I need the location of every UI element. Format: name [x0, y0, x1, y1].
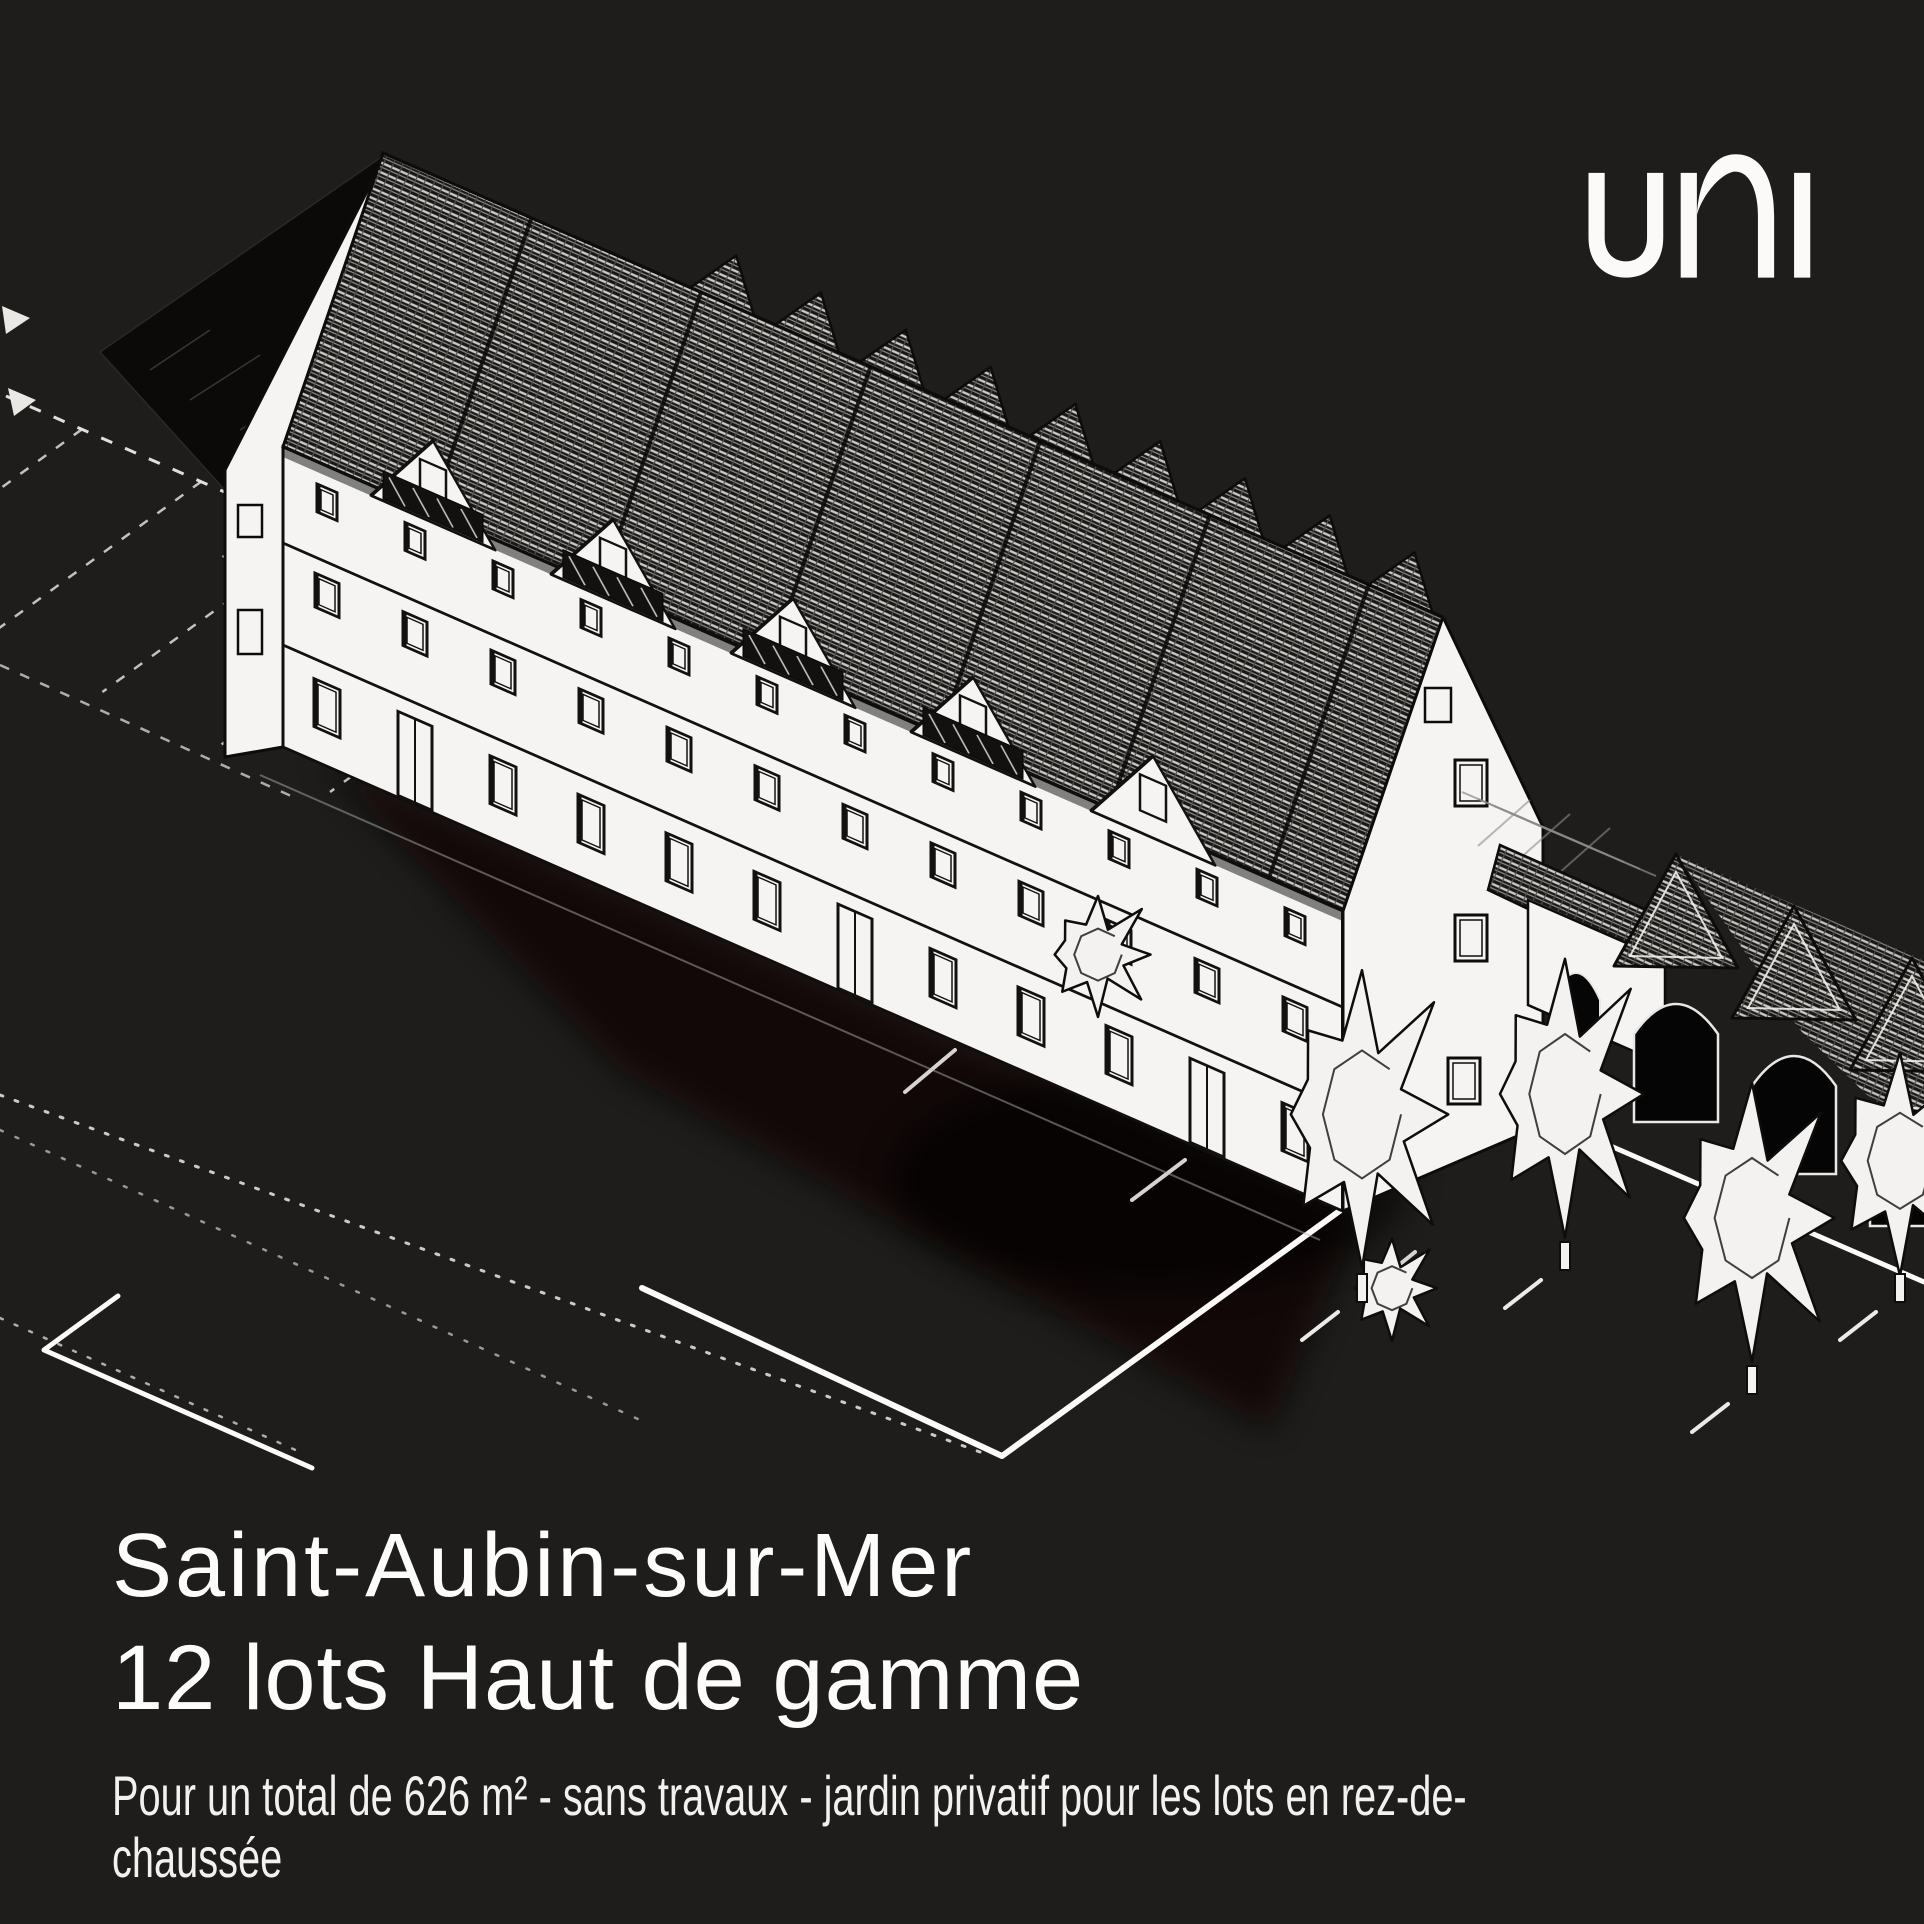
- real-estate-post-card: Saint-Aubin-sur-Mer 12 lots Haut de gamm…: [0, 0, 1924, 1924]
- uni-logo: [1586, 148, 1814, 300]
- logo-letter-n-arch: [1697, 154, 1774, 277]
- logo-letter-n-stem: [1681, 173, 1697, 278]
- uni-logo-glyphs: [1586, 148, 1814, 300]
- logo-letter-u: [1588, 173, 1663, 278]
- logo-letter-i: [1794, 173, 1810, 278]
